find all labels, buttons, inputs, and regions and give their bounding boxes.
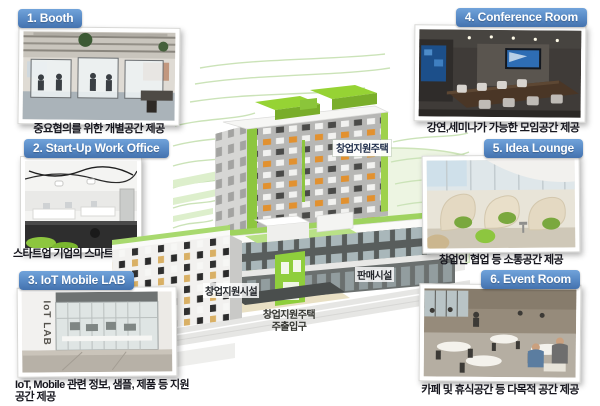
diagram-canvas: 창업지원주택 창업지원시설 판매시설 창업지원주택 주출입구 [0, 0, 600, 406]
building-illustration: 창업지원주택 창업지원시설 판매시설 창업지원주택 주출입구 [105, 30, 470, 375]
left-wing [112, 225, 242, 335]
panel-title-event-room: 6. Event Room [481, 270, 580, 289]
panel-title-conference-room: 4. Conference Room [456, 8, 587, 27]
label-main-entrance-line1: 창업지원주택 [249, 310, 329, 322]
label-startup-housing: 창업지원주택 [333, 140, 391, 156]
iot-lab-wall-text: IoT LAB [41, 300, 52, 345]
panel-caption-iot-lab: IoT, Mobile 관련 정보, 샘플, 제품 등 지원공간 제공 [15, 380, 193, 403]
label-main-entrance-line2: 주출입구 [249, 322, 329, 334]
label-main-entrance: 창업지원주택 주출입구 [249, 310, 329, 333]
panel-title-idea-lounge: 5. Idea Lounge [484, 139, 583, 158]
panel-title-booth: 1. Booth [18, 9, 82, 28]
panel-caption-event-room: 카페 및 휴식공간 등 다목적 공간 제공 [415, 385, 585, 397]
label-support-facility: 창업지원시설 [203, 283, 259, 298]
label-retail-facility: 판매시설 [355, 267, 394, 282]
